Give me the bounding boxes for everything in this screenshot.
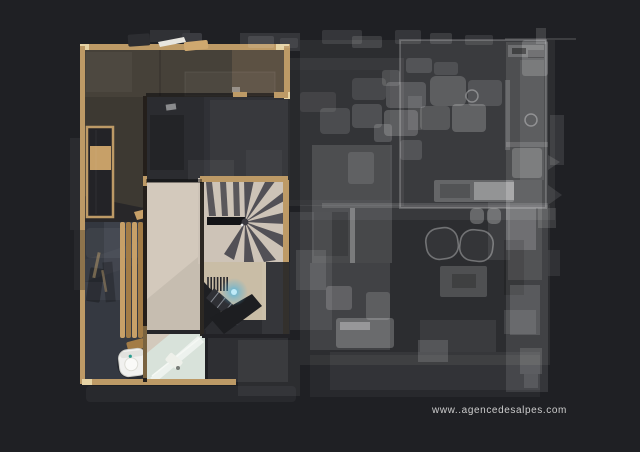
furniture-blob	[400, 140, 422, 160]
ghost-bump	[280, 38, 298, 48]
wall-segment	[274, 92, 288, 98]
ghost-bump	[465, 35, 493, 45]
wall-segment	[233, 92, 247, 97]
ghost-wall	[506, 142, 548, 147]
furniture-blob	[430, 76, 466, 106]
wall-stair-right-lower	[283, 262, 289, 336]
ghost-wall	[350, 208, 355, 263]
scan-point-core	[231, 289, 237, 295]
ghost-detail	[512, 48, 526, 54]
bathroom-wall	[146, 330, 206, 334]
wall-stair-left	[200, 182, 204, 336]
furniture-shadow	[150, 115, 184, 170]
dark-object	[128, 33, 151, 47]
ghost-bump	[504, 310, 536, 334]
spiral-staircase	[198, 178, 288, 264]
active-floorplan	[80, 33, 298, 385]
bench-plank	[138, 222, 143, 338]
terrace-sheen	[86, 52, 132, 92]
ghost-table-inlay	[452, 274, 476, 288]
furniture-blob	[406, 58, 432, 73]
floorplan-canvas	[0, 0, 640, 452]
small-object	[232, 87, 240, 92]
furniture-blob	[512, 148, 542, 178]
shower-drain	[176, 366, 180, 370]
furniture-blob	[452, 104, 486, 132]
stair-tread	[233, 182, 240, 216]
ghost-patch	[208, 338, 288, 382]
wall-mid-divider	[146, 179, 202, 183]
bench-plank	[126, 222, 131, 338]
ghost-room	[508, 220, 542, 280]
stair-void	[207, 217, 245, 225]
ghost-patch	[296, 250, 326, 290]
wall-stair-top	[200, 176, 288, 182]
ghost-pillow	[470, 208, 484, 224]
wall-bottom	[82, 379, 236, 385]
ghost-bed-texture	[340, 322, 370, 330]
terrace-rug-outline	[185, 72, 275, 96]
furniture-blob	[352, 78, 386, 100]
wall-stair-bottom	[202, 334, 290, 338]
middle-room	[146, 97, 288, 182]
furniture-blob	[420, 106, 450, 130]
furniture-blob	[300, 92, 336, 112]
wall-stair-right	[283, 180, 289, 264]
ghost-bump	[430, 33, 452, 44]
ghost-bed-shadow	[440, 184, 470, 198]
ghost-bump	[548, 250, 560, 276]
watermark: www..agencedesalpes.com	[432, 405, 567, 416]
wall-cap	[82, 379, 92, 385]
cabinet-body	[87, 127, 113, 217]
ghost-base-fringe	[330, 352, 540, 390]
furniture-blob	[246, 150, 282, 180]
ghost-bump	[536, 28, 546, 44]
stair-highlight	[241, 224, 244, 227]
ghost-bump	[352, 36, 382, 48]
wall-segment	[143, 326, 147, 378]
cabinet-shelf	[90, 146, 111, 170]
wall-left	[80, 46, 85, 384]
ghost-wall	[505, 80, 510, 150]
bench-plank	[132, 222, 137, 338]
wall-inner-top	[146, 93, 286, 97]
furniture-blob	[374, 124, 392, 142]
ghost-bump	[248, 36, 274, 48]
furniture-blob	[408, 96, 422, 130]
bathroom	[146, 330, 206, 382]
furniture-blob	[434, 62, 458, 75]
furniture-blob	[366, 292, 390, 320]
wall-shade	[80, 230, 85, 290]
lower-staircase-room	[204, 262, 290, 382]
wall-right-upper	[284, 46, 290, 98]
bench-plank	[120, 222, 125, 338]
dollhouse-floorplan-view: www..agencedesalpes.com	[0, 0, 640, 452]
wall-cabinet	[87, 127, 113, 217]
ghost-bump	[395, 30, 421, 44]
